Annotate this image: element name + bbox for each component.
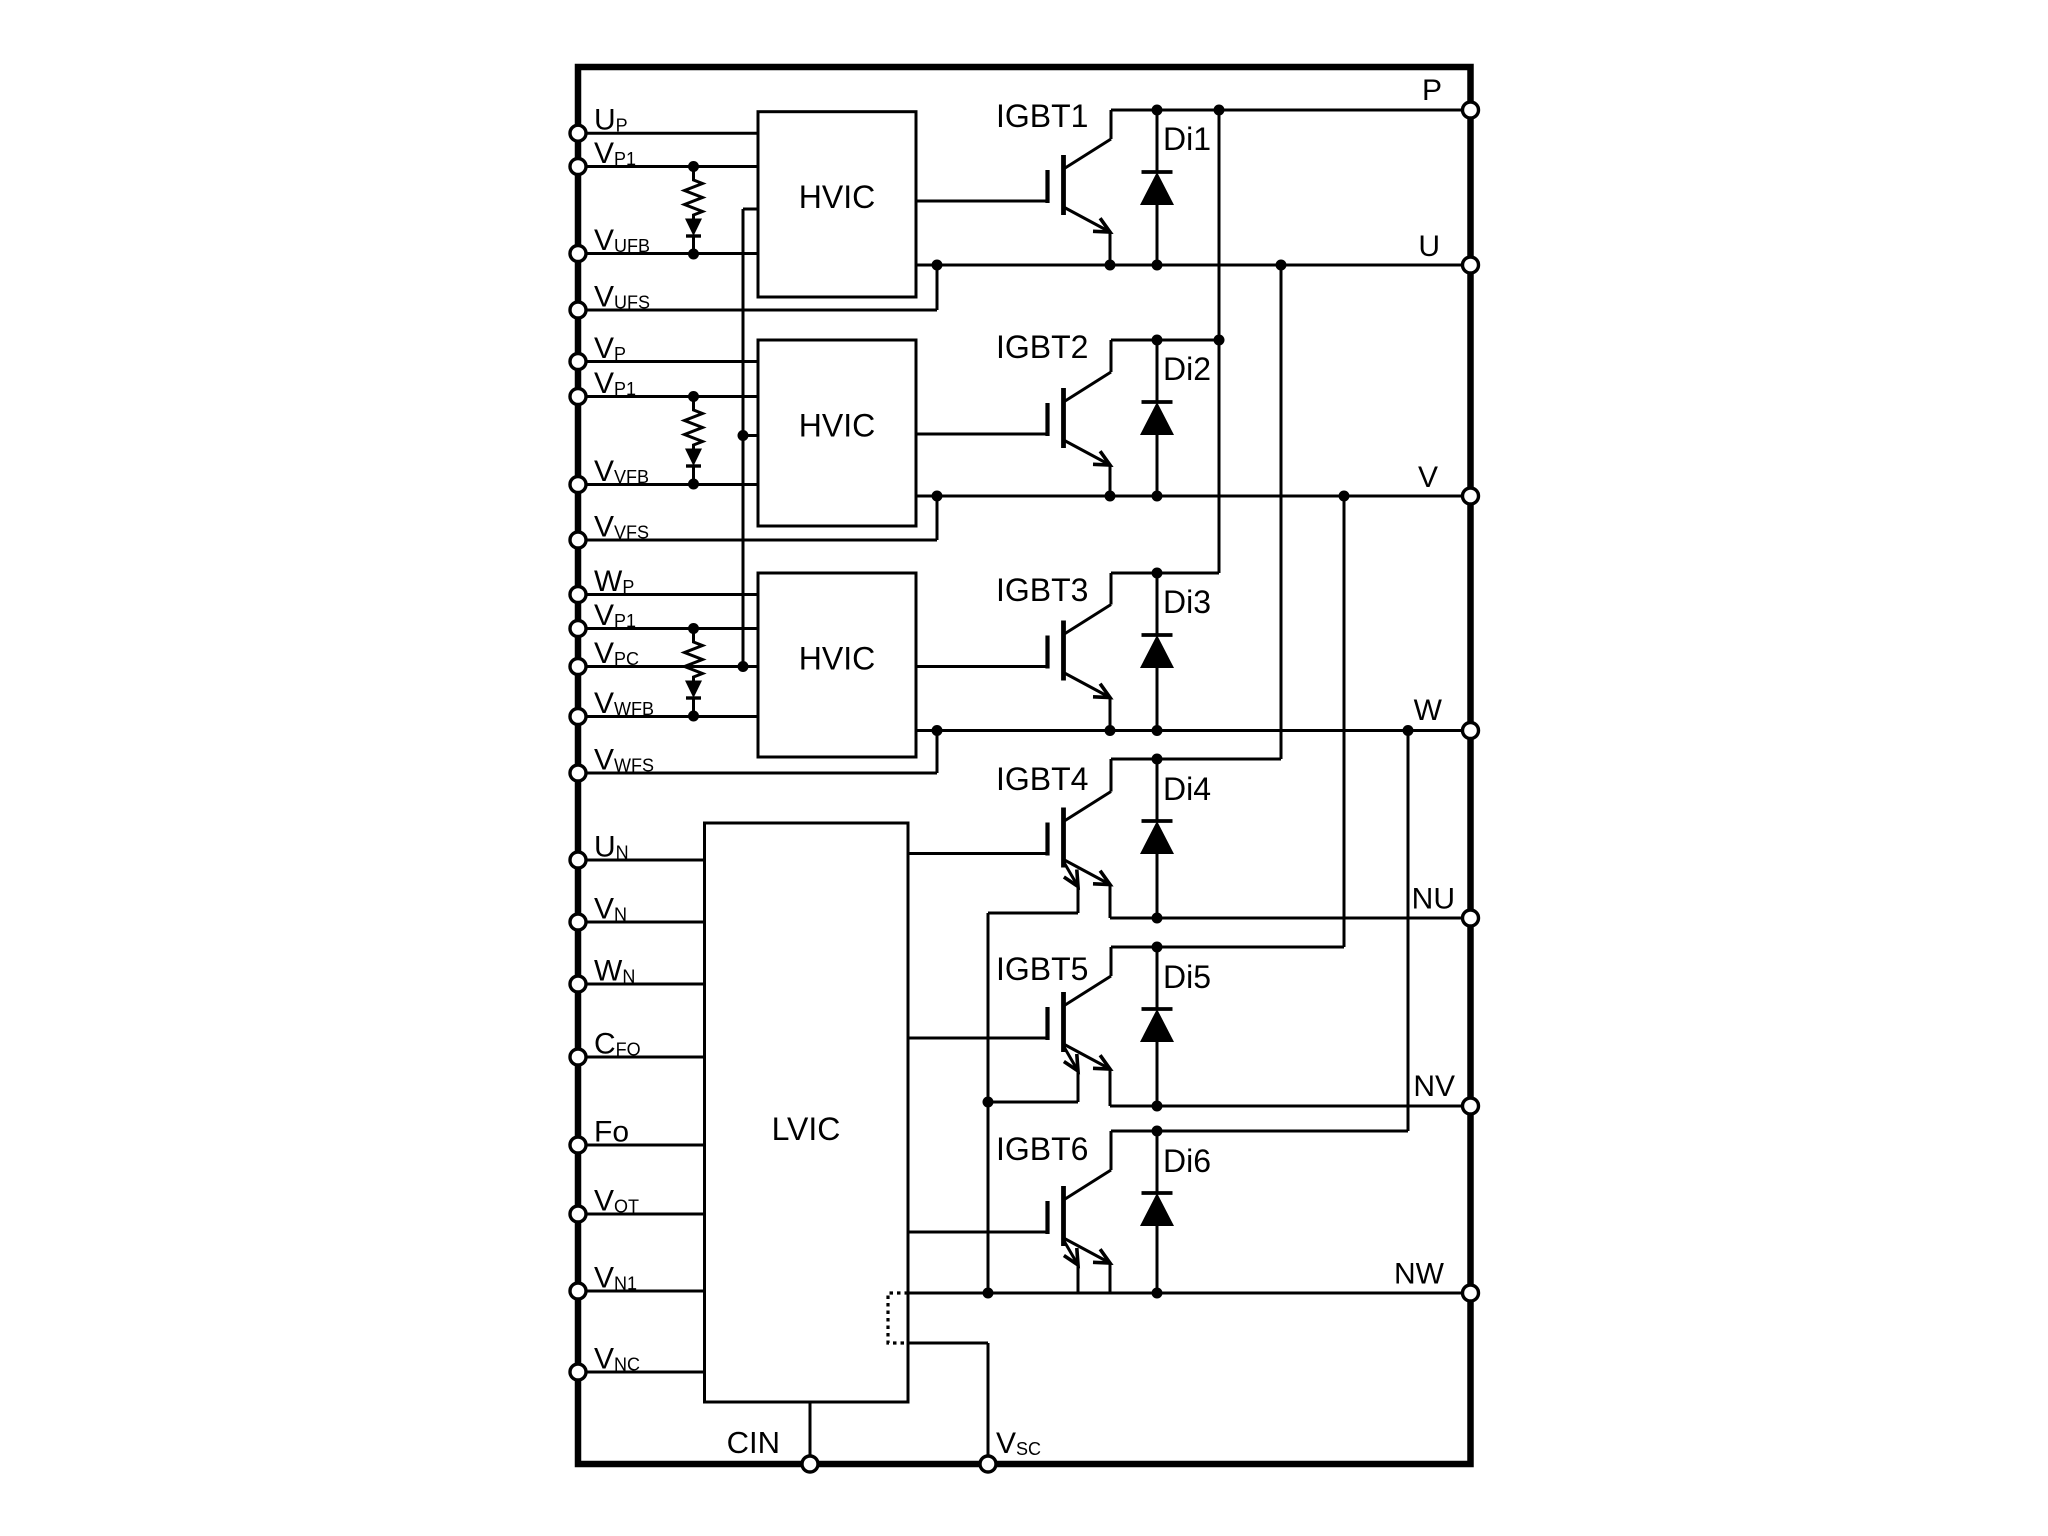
- svg-text:VWFB: VWFB: [594, 687, 654, 720]
- svg-text:VNC: VNC: [594, 1343, 640, 1376]
- svg-text:Di4: Di4: [1163, 771, 1211, 807]
- svg-text:VP1: VP1: [594, 367, 636, 400]
- svg-text:HVIC: HVIC: [799, 179, 875, 215]
- svg-text:UN: UN: [594, 831, 629, 864]
- svg-text:Di2: Di2: [1163, 351, 1211, 387]
- svg-text:VN: VN: [594, 893, 627, 926]
- svg-text:CIN: CIN: [727, 1425, 780, 1460]
- svg-text:NV: NV: [1413, 1070, 1455, 1103]
- svg-text:VVFB: VVFB: [594, 455, 649, 488]
- svg-text:VOT: VOT: [594, 1185, 639, 1218]
- svg-text:IGBT2: IGBT2: [996, 329, 1088, 365]
- svg-text:IGBT6: IGBT6: [996, 1131, 1088, 1167]
- svg-text:VWFS: VWFS: [594, 744, 654, 777]
- svg-text:WP: WP: [594, 565, 634, 598]
- svg-text:HVIC: HVIC: [799, 408, 875, 444]
- svg-text:NW: NW: [1394, 1258, 1445, 1291]
- svg-text:WN: WN: [594, 955, 635, 988]
- svg-text:VP: VP: [594, 332, 626, 365]
- svg-text:LVIC: LVIC: [772, 1111, 841, 1147]
- svg-text:CFO: CFO: [594, 1028, 641, 1061]
- svg-text:HVIC: HVIC: [799, 641, 875, 677]
- svg-text:VN1: VN1: [594, 1262, 637, 1295]
- svg-text:IGBT4: IGBT4: [996, 761, 1088, 797]
- svg-text:IGBT3: IGBT3: [996, 572, 1088, 608]
- svg-text:VP1: VP1: [594, 137, 636, 170]
- svg-text:VPC: VPC: [594, 637, 639, 670]
- svg-text:VVFS: VVFS: [594, 511, 649, 544]
- svg-text:Di3: Di3: [1163, 584, 1211, 620]
- svg-text:VUFB: VUFB: [594, 224, 650, 257]
- svg-text:VSC: VSC: [996, 1427, 1041, 1460]
- svg-text:Fo: Fo: [594, 1116, 629, 1149]
- svg-text:VP1: VP1: [594, 599, 636, 632]
- svg-text:UP: UP: [594, 104, 628, 137]
- svg-text:NU: NU: [1412, 883, 1455, 916]
- svg-text:P: P: [1422, 74, 1442, 107]
- svg-text:V: V: [1418, 461, 1438, 494]
- svg-text:Di6: Di6: [1163, 1143, 1211, 1179]
- svg-text:IGBT5: IGBT5: [996, 951, 1088, 987]
- svg-text:IGBT1: IGBT1: [996, 98, 1088, 134]
- svg-text:U: U: [1418, 230, 1440, 263]
- svg-text:Di5: Di5: [1163, 959, 1211, 995]
- svg-text:VUFS: VUFS: [594, 281, 650, 314]
- svg-text:Di1: Di1: [1163, 121, 1211, 157]
- svg-text:W: W: [1414, 694, 1443, 727]
